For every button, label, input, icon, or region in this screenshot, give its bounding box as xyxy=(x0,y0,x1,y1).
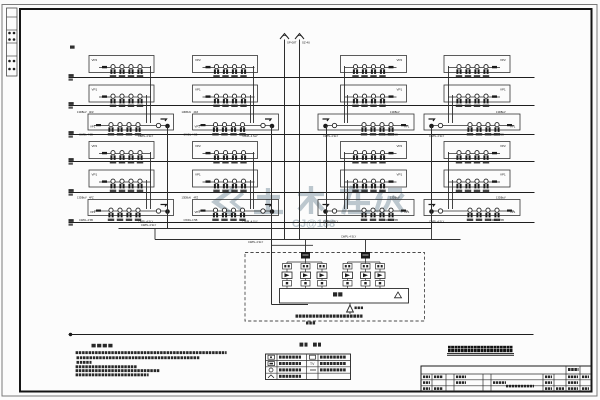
svg-text:CWDL-4 5B: CWDL-4 5B xyxy=(79,218,93,222)
svg-text:CWPL-4 SLY: CWPL-4 SLY xyxy=(248,240,264,244)
svg-text:CWDL-4 5B: CWDL-4 5B xyxy=(384,218,398,222)
svg-text:13DBuV: 13DBuV xyxy=(496,110,506,114)
svg-text:CWPL-4 SLY: CWPL-4 SLY xyxy=(341,235,357,239)
svg-text:VP1: VP1 xyxy=(195,88,201,92)
svg-text:13DBuV: 13DBuV xyxy=(182,110,192,114)
svg-text:TV: TV xyxy=(310,362,315,366)
svg-text:13DBuV: 13DBuV xyxy=(390,196,400,200)
svg-text:VP2: VP2 xyxy=(92,144,98,148)
svg-text:VP2: VP2 xyxy=(397,144,403,148)
svg-text:VP1: VP1 xyxy=(195,173,201,177)
svg-text:VP1: VP1 xyxy=(500,88,506,92)
svg-text:CWDL-4 5B: CWDL-4 5B xyxy=(490,218,504,222)
svg-text:13DBuV: 13DBuV xyxy=(182,196,192,200)
svg-text:CWPL-4 SLY: CWPL-4 SLY xyxy=(141,223,157,227)
svg-text:13DBuV: 13DBuV xyxy=(77,110,87,114)
svg-text:VP2: VP2 xyxy=(397,58,403,62)
svg-text:13DBuV: 13DBuV xyxy=(496,196,506,200)
svg-text:CWDL-4 5B: CWDL-4 5B xyxy=(490,133,504,137)
svg-text:VP1: VP1 xyxy=(397,88,403,92)
svg-text:VP1: VP1 xyxy=(92,173,98,177)
svg-text:VP2: VP2 xyxy=(500,144,506,148)
svg-text:VP2: VP2 xyxy=(195,58,201,62)
svg-text:13DBuV: 13DBuV xyxy=(77,196,87,200)
svg-text:VP2: VP2 xyxy=(92,58,98,62)
svg-text:SP-08T: SP-08T xyxy=(287,41,297,45)
svg-text:CWPL-4 SLY: CWPL-4 SLY xyxy=(323,219,339,223)
svg-text:VP2: VP2 xyxy=(195,144,201,148)
svg-text:4FZ: 4FZ xyxy=(194,110,199,114)
svg-text:CWDL-4 5B: CWDL-4 5B xyxy=(79,133,93,137)
svg-text:CWDL-4 5B: CWDL-4 5B xyxy=(184,133,198,137)
svg-text:4FZ: 4FZ xyxy=(194,196,199,200)
svg-text:CWDL-4 5B: CWDL-4 5B xyxy=(384,133,398,137)
svg-text:4FZ: 4FZ xyxy=(89,196,94,200)
svg-text:CWPL-4 SLY: CWPL-4 SLY xyxy=(323,134,339,138)
svg-text:CWPL-4 SLY: CWPL-4 SLY xyxy=(243,219,259,223)
svg-text:13DBuV: 13DBuV xyxy=(390,110,400,114)
svg-text:VP1: VP1 xyxy=(92,88,98,92)
svg-text:VP1: VP1 xyxy=(500,173,506,177)
svg-text:SZ-4U: SZ-4U xyxy=(302,41,310,45)
svg-text:CWPL-4 SLY: CWPL-4 SLY xyxy=(138,134,154,138)
svg-text:VP1: VP1 xyxy=(397,173,403,177)
svg-text:CWDL-4 5B: CWDL-4 5B xyxy=(184,218,198,222)
svg-text:CWPL-4 SLY: CWPL-4 SLY xyxy=(138,219,154,223)
svg-text:CWPL-4 SLY: CWPL-4 SLY xyxy=(243,134,259,138)
svg-text:VP2: VP2 xyxy=(500,58,506,62)
svg-text:4FZ: 4FZ xyxy=(89,110,94,114)
